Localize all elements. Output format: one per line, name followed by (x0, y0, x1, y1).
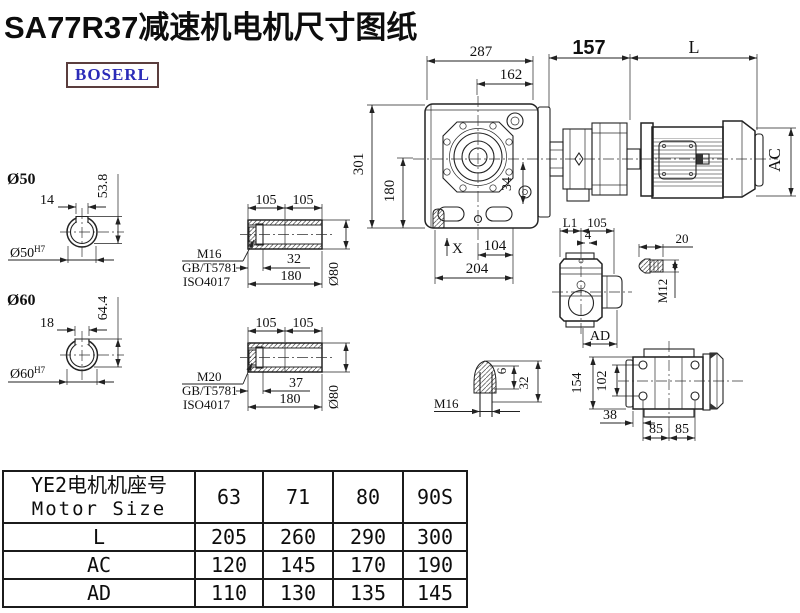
table-header-row: YE2电机机座号 Motor Size 63 71 80 90S (3, 471, 467, 523)
bore-label-60: Ø60H7 (10, 365, 46, 382)
dim-left: 301 180 34 X 104 204 (351, 105, 523, 284)
table-row-AC: AC 120 145 170 190 (3, 551, 467, 579)
table-row-L: L 205 260 290 300 (3, 523, 467, 551)
motor-view (641, 121, 763, 198)
dim-85-right: 85 (675, 422, 689, 437)
gearbox-rear-view: 154 102 38 85 85 (570, 341, 745, 441)
dim-32-top: 32 (287, 252, 301, 267)
table-col-71: 71 (263, 471, 333, 523)
dim-L1: L1 (563, 215, 577, 230)
dim-37-bot: 37 (289, 376, 303, 391)
dim-180-top: 180 (281, 269, 302, 284)
motor-fins (653, 138, 722, 188)
dim-X: X (452, 241, 463, 257)
callout-m16: M16 (197, 246, 222, 261)
callout-m20: M20 (197, 369, 222, 384)
shaft60-title: Ø60 (7, 292, 35, 309)
dim-top: 287 162 157 L (427, 37, 757, 130)
bore-label-50: Ø50H7 (10, 244, 46, 261)
dim-d80-bot: Ø80 (327, 385, 342, 409)
table-cell: 260 (263, 523, 333, 551)
callout-gbt5781-2: GB/T5781 (182, 383, 238, 398)
dim-18: 18 (40, 316, 54, 331)
dim-14: 14 (40, 193, 54, 208)
row-label: AC (3, 551, 195, 579)
table-col-90s: 90S (403, 471, 467, 523)
table-cell: 135 (333, 579, 403, 607)
dim-180-left: 180 (382, 180, 398, 203)
dim-104: 104 (484, 238, 507, 254)
table-cell: 290 (333, 523, 403, 551)
dim-102: 102 (595, 371, 610, 392)
hollow-shaft-top-view: 105 105 32 180 Ø80 (236, 193, 350, 288)
dim-AC: AC (765, 148, 784, 172)
dim-38: 38 (603, 408, 617, 423)
dim-6: 6 (494, 367, 509, 374)
table-cell: 145 (263, 551, 333, 579)
dim-301: 301 (351, 153, 367, 176)
dim-M12: M12 (655, 279, 670, 304)
dim-4: 4 (585, 227, 592, 242)
row-label: L (3, 523, 195, 551)
gearbox-side-view: L1 105 4 AD (552, 215, 632, 348)
table-cell: 190 (403, 551, 467, 579)
dim-34: 34 (500, 177, 515, 191)
shaft-section-50: Ø50 53.8 14 Ø50H7 (7, 171, 124, 263)
pin-m12-view: 20 M12 (639, 231, 693, 303)
dim-64.4: 64.4 (96, 296, 111, 321)
hollow-shaft-bottom-view: 105 105 37 180 Ø80 (236, 316, 350, 411)
technical-drawing: 287 162 157 L AC 301 180 (0, 0, 800, 462)
dim-20: 20 (676, 231, 689, 246)
oil-plug-detail (433, 209, 444, 228)
callout-iso4017-2: ISO4017 (183, 397, 230, 412)
dim-32-plug: 32 (516, 377, 531, 390)
callout-gbt5781: GB/T5781 (182, 260, 238, 275)
table-cell: 130 (263, 579, 333, 607)
dim-85-left: 85 (649, 422, 663, 437)
table-col-80: 80 (333, 471, 403, 523)
shaft50-title: Ø50 (7, 171, 35, 188)
row-label: AD (3, 579, 195, 607)
dim-53.8: 53.8 (96, 174, 111, 199)
motor-size-table: YE2电机机座号 Motor Size 63 71 80 90S L 205 2… (2, 470, 468, 608)
dim-105b-top: 105 (293, 193, 314, 208)
dim-d80-top: Ø80 (327, 262, 342, 286)
dim-180-bot: 180 (280, 392, 301, 407)
motor-size-label-cn: YE2电机机座号 (4, 473, 194, 497)
motor-size-label-en: Motor Size (4, 497, 194, 521)
gearbox-front-view (425, 96, 550, 243)
dim-AD: AD (590, 329, 610, 344)
bolt-callout-m16: M16 GB/T5781 ISO4017 (182, 240, 254, 289)
dim-287: 287 (470, 44, 493, 60)
dim-105a-bot: 105 (256, 316, 277, 331)
dim-154: 154 (570, 373, 585, 394)
dim-L: L (689, 37, 700, 57)
table-col-63: 63 (195, 471, 263, 523)
plug-m16-view: M16 6 32 (434, 361, 542, 417)
table-cell: 205 (195, 523, 263, 551)
dim-105b-bot: 105 (293, 316, 314, 331)
table-row-AD: AD 110 130 135 145 (3, 579, 467, 607)
dim-105a-top: 105 (256, 193, 277, 208)
dim-M16: M16 (434, 396, 459, 411)
adapter-view (550, 123, 640, 201)
drawing-page: SA77R37减速机电机尺寸图纸 BOSERL (0, 0, 800, 613)
table-header-label-cell: YE2电机机座号 Motor Size (3, 471, 195, 523)
table-cell: 120 (195, 551, 263, 579)
table-cell: 300 (403, 523, 467, 551)
dim-204: 204 (466, 261, 489, 277)
shaft-section-60: Ø60 64.4 18 Ø60H7 (7, 292, 124, 385)
dim-157: 157 (572, 37, 605, 59)
dim-162: 162 (500, 67, 523, 83)
bolt-callout-m20: M20 GB/T5781 ISO4017 (182, 363, 252, 412)
table-cell: 110 (195, 579, 263, 607)
table-cell: 145 (403, 579, 467, 607)
table-cell: 170 (333, 551, 403, 579)
callout-iso4017: ISO4017 (183, 274, 230, 289)
